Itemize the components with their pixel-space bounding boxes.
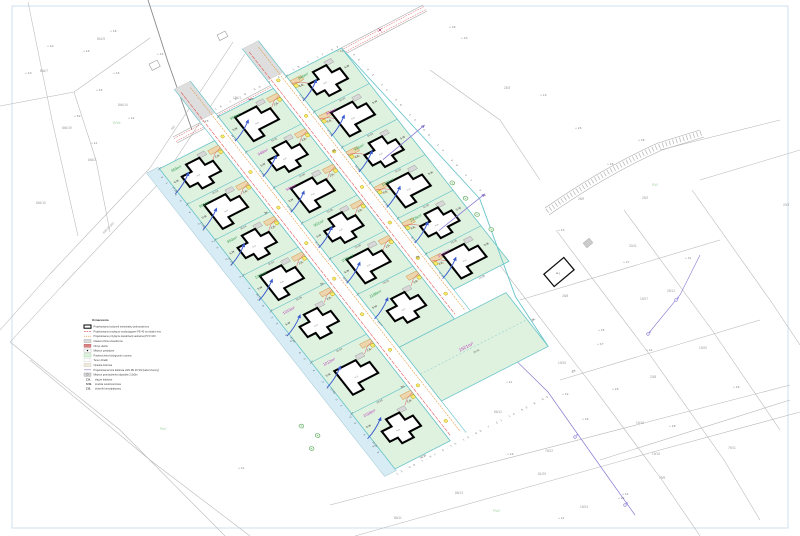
legend-item-label: Miejsce gromadzenia odpadów 2,5x5m [94,373,138,377]
parcel-boundary-line [30,360,250,536]
spot-height-value: 4.9 [50,45,54,48]
spot-height-point [734,387,735,388]
tree-symbol [298,423,305,428]
spot-height-value: 2.8 [672,425,676,428]
tree-symbol [308,446,315,451]
legend-item: Miejsce postojowe [84,349,115,353]
subdivision-site: m.jn959m²S.WZ.B.17.2835.04m.jn951m²S.WZ.… [66,1,619,500]
spot-height-point [84,51,85,52]
parcel-number: 20/8 [650,375,656,379]
legend-swatch-terrace [84,363,91,366]
parcel-boundary-line [660,120,780,150]
legend-item: Projektowane przyłącze wodociągowe PE 40… [84,329,162,333]
legend-swatch-lot [84,359,91,362]
spot-height-point [623,494,624,495]
landuse-code: RIVa [113,121,121,125]
site-plan-map: w.j m.jn959m²S.WZ.B.17.2835.04m.jn951m²S… [0,0,800,536]
parcel-number: 25/3 [504,86,510,90]
legend-swatch-building [84,325,91,328]
spot-height-point [114,73,115,74]
legend-item: Teren działki [84,358,108,362]
spot-height-point [462,38,463,39]
parcel-number: 19/16 [636,421,644,425]
parcel-number: 846/19 [62,126,72,130]
parcel-boundary-line [0,274,50,330]
parcel-number: 846/10 [36,201,46,205]
spot-height-value: 5.2 [77,115,81,118]
spot-height-point [338,51,339,52]
spot-height-point [239,468,240,469]
spot-height-point [559,230,560,231]
spot-height-point [203,121,204,122]
utility-node [649,331,650,332]
legend-item-label: Projektowany budynek mieszkalny jednorod… [94,325,150,329]
power-pole [675,299,678,302]
parcel-number: 86/13 [455,491,463,495]
parcel-number: 841/9 [97,37,105,41]
spot-height-point [75,116,76,117]
parcel-number: 846/14 [118,103,128,107]
legend-item: Projektowane przyłącze kanalizacji sanit… [84,334,156,338]
spot-height-point [686,258,687,259]
parcel-number: 76/22 [545,449,553,453]
legend-abbr-label: zbiornik bezodpływowy [95,387,122,391]
spot-height-point [248,99,249,100]
legend-item: Nawierzchnia utwardzona [84,339,123,343]
spot-height-point [613,389,614,390]
spot-height-point [111,31,112,32]
spot-height-value: 2.1 [509,381,513,384]
shed [583,238,593,248]
spot-height-value: 4.5 [99,89,103,92]
spot-height-point [563,394,564,395]
legend-item-label: Powierzchnia biologicznie czynna [94,353,133,357]
parcel-number: 19/26 [558,361,566,365]
legend-item-label: Nawierzchnia utwardzona [94,339,124,343]
legend-abbr-code: Z.B. [86,387,91,391]
spot-height-value: 4.8 [113,30,117,33]
parcel-number: 86/11 [394,516,402,520]
spot-height-value: 4.1 [94,142,98,145]
spot-height-point [647,350,648,351]
legend-item-label: Projektowane przyłącze kanalizacji sanit… [94,334,157,338]
spot-height-point [639,140,640,141]
cable-junction-label: ZK [530,317,536,322]
embankment-edge [549,137,704,215]
parcel-number: 186/1 [233,96,241,100]
spot-height-value: 4.9 [28,72,32,75]
spot-height-value: 3.2 [565,393,569,396]
landuse-code: PsIV [493,509,501,513]
legend-swatch-paved [84,339,91,342]
spot-height-value: 1.9 [543,94,547,97]
building-label: w.j [556,271,560,275]
tree-symbol [314,433,321,438]
legend-item-label: Opaska żwirowa [94,363,113,367]
parcel-number: 26/9 [578,197,584,201]
spot-height-point [624,262,625,263]
utility-node [576,434,577,435]
legend-item-label: Miejsce postojowe [94,349,115,353]
legend-item-label: Projektowane przyłącze wodociągowe PE 40… [94,329,162,333]
power-pole [624,504,627,507]
spot-height-point [576,128,577,129]
legend-item-label: Projektowana linia kablowa eNN PE 40 SN … [94,368,160,372]
spot-height-point [450,27,451,28]
power-pole [574,436,577,439]
spot-height-point [541,95,542,96]
parcel-boundary-line [560,320,760,380]
parcel-boundary-line [700,150,800,180]
spot-height-value: 4.2 [131,117,135,120]
spot-height-point [608,164,609,165]
utility-node [626,502,627,503]
spot-height-value: 3.3 [464,37,468,40]
spot-height-value: 2.7 [626,261,630,264]
site-plan-sheet: w.j m.jn959m²S.WZ.B.17.2835.04m.jn951m²S… [0,0,800,536]
tree-symbol [462,195,469,200]
parcel-boundary-line [600,400,790,460]
hydrant-mark [378,28,382,32]
spot-height-value: 4.6 [86,50,90,53]
parcel-boundary-line [624,210,780,430]
parcel-number: 30/11 [629,244,637,248]
parcel-number: 79/11 [728,446,736,450]
spot-height-point [97,90,98,91]
spot-height-value: 2.6 [736,386,740,389]
tree-symbol [488,227,495,232]
spot-height-point [507,382,508,383]
spot-height-point [129,118,130,119]
tree-symbol [474,212,481,217]
small-building [149,60,160,70]
legend-abbr-code: Z.K. [86,377,91,381]
spot-height-point [92,143,93,144]
spot-height-value: 2.8 [615,388,619,391]
spot-height-value: 2.4 [649,349,653,352]
legend-swatch-parking-dot [87,350,88,351]
parcel-number: 26/8 [562,294,568,298]
legend-item-label: Teren działki [94,358,109,362]
legend-item-label: Obrys dachu [94,344,109,348]
spot-height-value: 2.1 [561,517,565,520]
spot-height-point [559,518,560,519]
spot-height-value: 4.6 [116,72,120,75]
parcel-number: 19/20 [699,346,707,350]
parcel-number: 19/15 [652,452,660,456]
small-building [217,31,228,40]
utility-node [677,297,678,298]
cable-junction-label: ZK [571,369,577,374]
parcel-boundary-line [692,190,800,345]
spot-height-value: 3.1 [241,467,245,470]
legend-abbr-code: S.W. [86,382,92,386]
parcel-number: 81/25 [538,472,546,476]
legend-abbreviation: Z.B.zbiornik bezodpływowy [86,387,122,391]
legend-abbr-label: studnia wodomierzowa [95,382,121,386]
spot-height-value: 2.8 [641,139,645,142]
legend-item: Opaska żwirowa [84,363,113,367]
parcel-number: 79/9 [659,476,665,480]
power-pole [647,333,650,336]
spot-height-value: 2.6 [585,418,589,421]
legend-swatch-bio [84,354,91,357]
parcel-number: 846/3 [88,158,96,162]
landuse-code: RVI [652,183,658,187]
parcel-number: 25/2 [642,196,648,200]
parcel-boundary-line [430,70,540,180]
spot-height-point [583,419,584,420]
parcel-number: 19/27 [640,297,648,301]
spot-height-value: 3.7 [600,343,604,346]
spot-height-point [26,73,27,74]
legend-item: Projektowany budynek mieszkalny jednorod… [84,325,150,329]
spot-height-value: 2.6 [578,127,582,130]
legend: Oznaczenia Projektowany budynek mieszkal… [84,318,162,391]
spot-height-value: 2.6 [601,329,605,332]
legend-swatch-roof [84,344,91,347]
parcel-boundary-line [556,230,760,520]
legend-abbreviation: S.W.studnia wodomierzowa [86,382,121,386]
parcel-number: 20/3 [783,203,789,207]
legend-abbr-label: złącze kablowe [95,377,113,381]
parcel-boundary-line [74,92,110,232]
spot-height-value: 2.9 [510,453,514,456]
parcel-number: 25/12 [667,289,675,293]
landuse-code: PsV [160,427,167,431]
parcel-number: 19/24 [580,505,588,509]
legend-item: Miejsce gromadzenia odpadów 2,5x5m [84,373,138,377]
legend-abbreviation: Z.K.złącze kablowe [86,377,113,381]
spot-height-point [670,426,671,427]
spot-height-point [599,330,600,331]
tree-symbol [449,180,456,185]
spot-height-point [48,46,49,47]
parcel-boundary-line [10,286,62,342]
legend-item: Projektowana linia kablowa eNN PE 40 SN … [84,368,159,372]
power-line [648,255,700,334]
spot-height-point [158,54,159,55]
spot-height-value: 4.4 [160,53,164,56]
spot-height-point [598,344,599,345]
legend-item: Obrys dachu [84,344,109,348]
parcel-number: 86/12 [494,410,502,414]
parcel-number: 846/7 [40,69,48,73]
legend-swatch-waste [84,373,91,376]
spot-height-point [508,454,509,455]
spot-height-value: 3.1 [688,257,692,260]
spot-height-point [619,498,620,499]
spot-height-value: 3.9 [452,26,456,29]
legend-item: Powierzchnia biologicznie czynna [84,353,132,357]
legend-title: Oznaczenia [92,318,109,322]
spot-height-value: 2.3 [561,229,565,232]
spot-height-value: 4.4 [625,493,629,496]
